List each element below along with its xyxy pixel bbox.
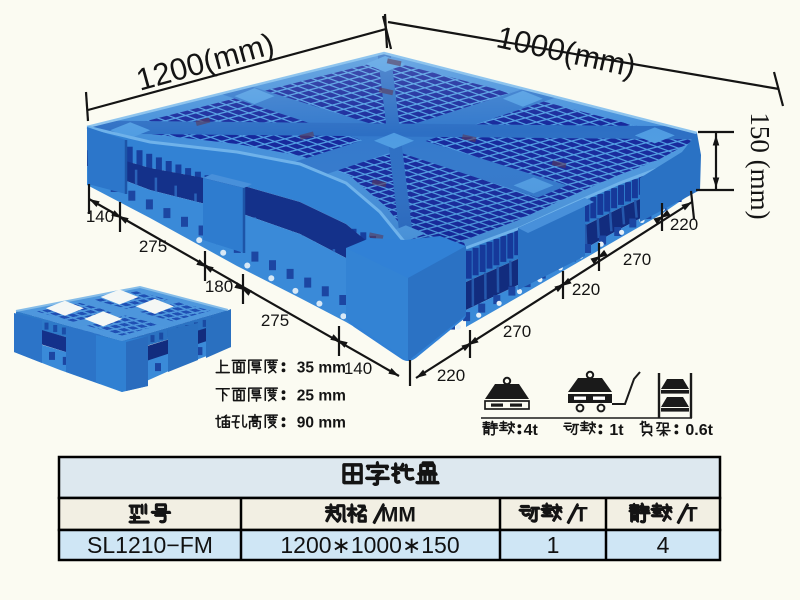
svg-text:1200∗1000∗150: 1200∗1000∗150 <box>280 532 459 558</box>
svg-text:1t: 1t <box>609 422 624 439</box>
svg-text:4: 4 <box>657 532 670 558</box>
svg-text:275: 275 <box>261 311 289 330</box>
svg-text:T: T <box>575 504 588 527</box>
svg-text:275: 275 <box>139 237 167 256</box>
svg-text:T: T <box>685 504 698 527</box>
svg-text:1: 1 <box>547 532 560 558</box>
svg-text:220: 220 <box>670 215 698 234</box>
svg-text:270: 270 <box>503 322 531 341</box>
svg-text:SL1210−FM: SL1210−FM <box>87 532 213 558</box>
svg-text:MM: MM <box>381 504 416 527</box>
svg-text:90 mm: 90 mm <box>297 415 346 432</box>
svg-text:4t: 4t <box>524 422 539 439</box>
svg-text:150 (mm): 150 (mm) <box>745 112 775 219</box>
svg-text:140: 140 <box>344 359 372 378</box>
svg-text:140: 140 <box>86 207 114 226</box>
svg-text:35 mm: 35 mm <box>297 360 346 377</box>
svg-text:25 mm: 25 mm <box>297 388 346 405</box>
svg-text:0.6t: 0.6t <box>685 422 713 439</box>
svg-text:270: 270 <box>623 250 651 269</box>
svg-text:180: 180 <box>205 277 233 296</box>
svg-text:220: 220 <box>572 280 600 299</box>
svg-text:220: 220 <box>437 366 465 385</box>
